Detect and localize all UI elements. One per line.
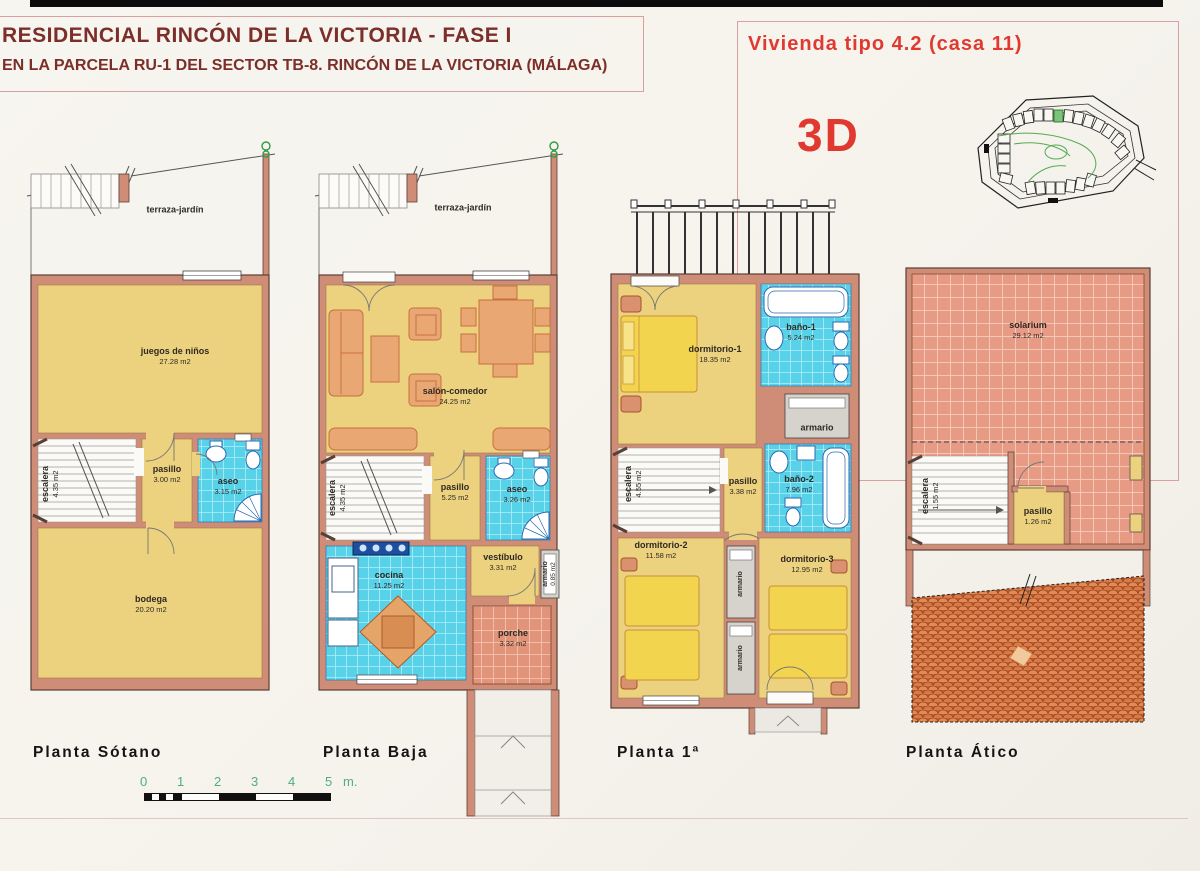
room-label: juegos de niños27.28 m2 <box>141 346 210 366</box>
site-house-highlight <box>1054 110 1063 122</box>
bed-single <box>625 630 699 680</box>
roof <box>912 574 1144 722</box>
scale-tick: 4 <box>288 774 295 789</box>
pergola <box>631 200 835 274</box>
bed-double <box>621 316 697 392</box>
toilet-icon <box>534 468 548 486</box>
plan-atico: solarium29.12 m2 escalera1.55 m2 pasillo… <box>898 258 1156 730</box>
room-label: salón-comedor24.25 m2 <box>423 386 488 406</box>
coffee-table-icon <box>371 336 399 382</box>
sink-icon <box>494 463 514 479</box>
room-label: porche3.32 m2 <box>498 628 528 648</box>
room-label: escalera1.55 m2 <box>920 478 940 514</box>
view-3d-label: 3D <box>797 108 860 162</box>
room-label: cocina11.25 m2 <box>374 570 405 590</box>
bed-single <box>625 576 699 626</box>
planter-icon <box>1130 514 1142 532</box>
scale-tick: 1 <box>177 774 184 789</box>
dining-table-icon <box>479 300 533 364</box>
sideboard-icon <box>329 428 417 450</box>
room-label: pasillo3.38 m2 <box>729 476 758 496</box>
room-label: dormitorio-118.35 m2 <box>689 344 742 364</box>
floor-plan-sheet: RESIDENCIAL RINCÓN DE LA VICTORIA - FASE… <box>0 0 1200 871</box>
chair-icon <box>535 334 550 352</box>
toilet-tank-icon <box>833 322 849 331</box>
room-label: terraza-jardín <box>146 205 203 216</box>
unit-type-label: Vivienda tipo 4.2 (casa 11) <box>748 33 1023 56</box>
plan-baja: terraza-jardín salón-comedor24.25 m2 esc… <box>313 138 585 828</box>
room-label: escalera4.35 m2 <box>40 466 60 502</box>
room-label: aseo3.26 m2 <box>503 484 530 504</box>
room-label: armario <box>737 645 745 671</box>
room-label: bodega20.20 m2 <box>135 594 167 614</box>
chair-icon <box>493 364 517 377</box>
plan-title-atico: Planta Ático <box>906 744 1020 762</box>
room-label: pasillo5.25 m2 <box>441 482 470 502</box>
room-label: escalera4.35 m2 <box>327 480 347 516</box>
plan-title-baja: Planta Baja <box>323 744 429 762</box>
toilet-icon <box>786 508 800 526</box>
rear-step <box>749 708 827 734</box>
bed-single <box>769 634 847 678</box>
room-label: escalera4.55 m2 <box>623 466 643 502</box>
site-plan-map-icon <box>968 86 1158 226</box>
scale-tick: 3 <box>251 774 258 789</box>
room-label: pasillo1.26 m2 <box>1024 506 1053 526</box>
scale-bar: 0 1 2 3 4 5 m. <box>140 774 390 810</box>
sideboard-icon <box>493 428 550 450</box>
window-top <box>473 271 529 280</box>
room-label: vestíbulo3.31 m2 <box>483 552 523 572</box>
window-top <box>183 271 241 280</box>
counter-icon <box>328 620 358 646</box>
sink-icon <box>770 451 788 473</box>
toilet-tank-icon <box>246 441 260 450</box>
room-label: dormitorio-211.58 m2 <box>635 540 688 560</box>
plan-primera: dormitorio-118.35 m2 baño-15.24 m2 armar… <box>603 196 873 741</box>
scale-bar-rule <box>144 793 331 801</box>
planter-icon <box>1130 456 1142 480</box>
toilet-icon <box>246 451 260 469</box>
room-label: dormitorio-312.95 m2 <box>781 554 834 574</box>
sheet-border-line <box>0 818 1188 819</box>
bidet-icon <box>834 364 848 382</box>
scale-tick: 2 <box>214 774 221 789</box>
scan-top-bar <box>30 0 1163 7</box>
bathtub-icon <box>764 287 848 317</box>
room-label: solarium29.12 m2 <box>1009 320 1047 340</box>
room-label: baño-15.24 m2 <box>786 322 816 342</box>
chair-icon <box>461 334 476 352</box>
room-label: pasillo3.00 m2 <box>153 464 182 484</box>
sink-icon <box>206 446 226 462</box>
plan-title-sotano: Planta Sótano <box>33 744 162 762</box>
terrace-stairs <box>31 164 129 216</box>
cushion-icon <box>621 558 637 571</box>
chair-icon <box>535 308 550 326</box>
scale-unit: m. <box>343 774 357 789</box>
toilet-tank-icon <box>785 498 801 507</box>
bed-single <box>769 586 847 630</box>
scale-tick: 0 <box>140 774 147 789</box>
nightstand-icon <box>621 296 641 312</box>
room-label: armario <box>800 423 833 434</box>
chair-icon <box>461 308 476 326</box>
room-cocina <box>326 542 466 684</box>
room-label: armario <box>737 571 745 597</box>
site-access-road <box>1134 160 1156 180</box>
room-label: terraza-jardín <box>434 203 491 214</box>
plan-title-primera: Planta 1ª <box>617 744 700 762</box>
room-label: aseo3.15 m2 <box>214 476 241 496</box>
project-title: RESIDENCIAL RINCÓN DE LA VICTORIA - FASE… <box>2 24 512 48</box>
project-subtitle: EN LA PARCELA RU-1 DEL SECTOR TB-8. RINC… <box>2 57 607 75</box>
terrace-stairs <box>319 164 417 216</box>
room-label: armario0.85 m2 <box>542 561 558 587</box>
site-gate-west <box>984 144 989 153</box>
plan-sotano-drawing <box>25 138 297 763</box>
nightstand-icon <box>621 396 641 412</box>
cushion-icon <box>831 682 847 695</box>
plan-sotano: terraza-jardín juegos de niños27.28 m2 e… <box>25 138 297 763</box>
toilet-icon <box>834 332 848 350</box>
scale-tick: 5 <box>325 774 332 789</box>
site-gate-south <box>1048 198 1058 203</box>
chair-icon <box>493 286 517 299</box>
entrance-walkway <box>467 690 559 816</box>
sink-icon <box>765 326 783 350</box>
cabinet-icon <box>797 446 815 460</box>
window-bottom <box>643 696 699 705</box>
site-green-paths <box>998 133 1096 182</box>
toilet-tank-icon <box>534 458 548 467</box>
room-label: baño-27.96 m2 <box>784 474 814 494</box>
